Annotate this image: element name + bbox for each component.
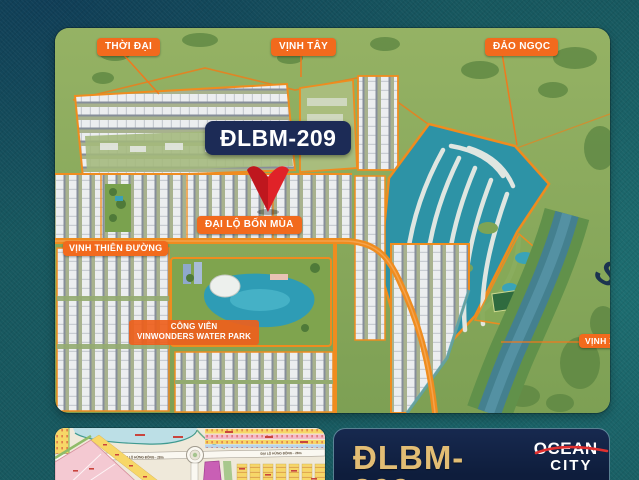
logo-red-swoosh-icon (534, 444, 610, 456)
label-vinh-tay: VỊNH TÂY (271, 38, 336, 56)
label-thoi-dai: THỜI ĐẠI (97, 38, 160, 56)
estate-lagoon-west (355, 176, 385, 340)
plan-magenta-block (203, 461, 222, 480)
aerial-map: S THỜI ĐẠI VỊNH TÂY ĐẢO NGỌC ĐLBM-209 ĐẠ… (55, 28, 610, 413)
location-pin-icon (243, 160, 293, 214)
poster-background: S THỜI ĐẠI VỊNH TÂY ĐẢO NGỌC ĐLBM-209 ĐẠ… (0, 0, 639, 480)
aerial-map-art: S (55, 28, 610, 413)
estate-vinh-tay (358, 76, 398, 170)
footer-plot-code: ĐLBM-209 (353, 438, 521, 480)
ocean-city-logo-bottom: CITY (534, 458, 609, 473)
label-vinh-xa: VỊNH XA (579, 334, 610, 348)
label-vinh-thien-duong: VỊNH THIÊN ĐƯỜNG (63, 241, 168, 256)
estate-lower-middle (175, 352, 333, 412)
label-water-park: CÔNG VIÊN VINWONDERS WATER PARK (129, 320, 259, 345)
label-boulevard: ĐẠI LỘ BỐN MÙA (197, 216, 302, 234)
ocean-city-logo: OCEAN CITY (534, 438, 609, 473)
label-water-park-line2: VINWONDERS WATER PARK (137, 332, 251, 342)
footer-title-bar: ĐLBM-209 OCEAN CITY (333, 428, 610, 480)
plan-lot-columns (237, 464, 325, 480)
dome-building (210, 275, 240, 297)
site-plan-art: ĐẠI LỘ HỪNG ĐÔNG - 28m ĐẠI LỘ HỪNG ĐÔNG … (55, 428, 325, 480)
label-dao-ngoc: ĐẢO NGỌC (485, 38, 558, 56)
plan-road-label-right: ĐẠI LỘ HỪNG ĐÔNG - 28m (260, 450, 301, 456)
site-plan: ĐẠI LỘ HỪNG ĐÔNG - 28m ĐẠI LỘ HỪNG ĐÔNG … (55, 428, 325, 480)
plot-badge: ĐLBM-209 (205, 121, 351, 155)
plan-topright-rows (205, 429, 325, 448)
label-water-park-line1: CÔNG VIÊN (137, 322, 251, 332)
